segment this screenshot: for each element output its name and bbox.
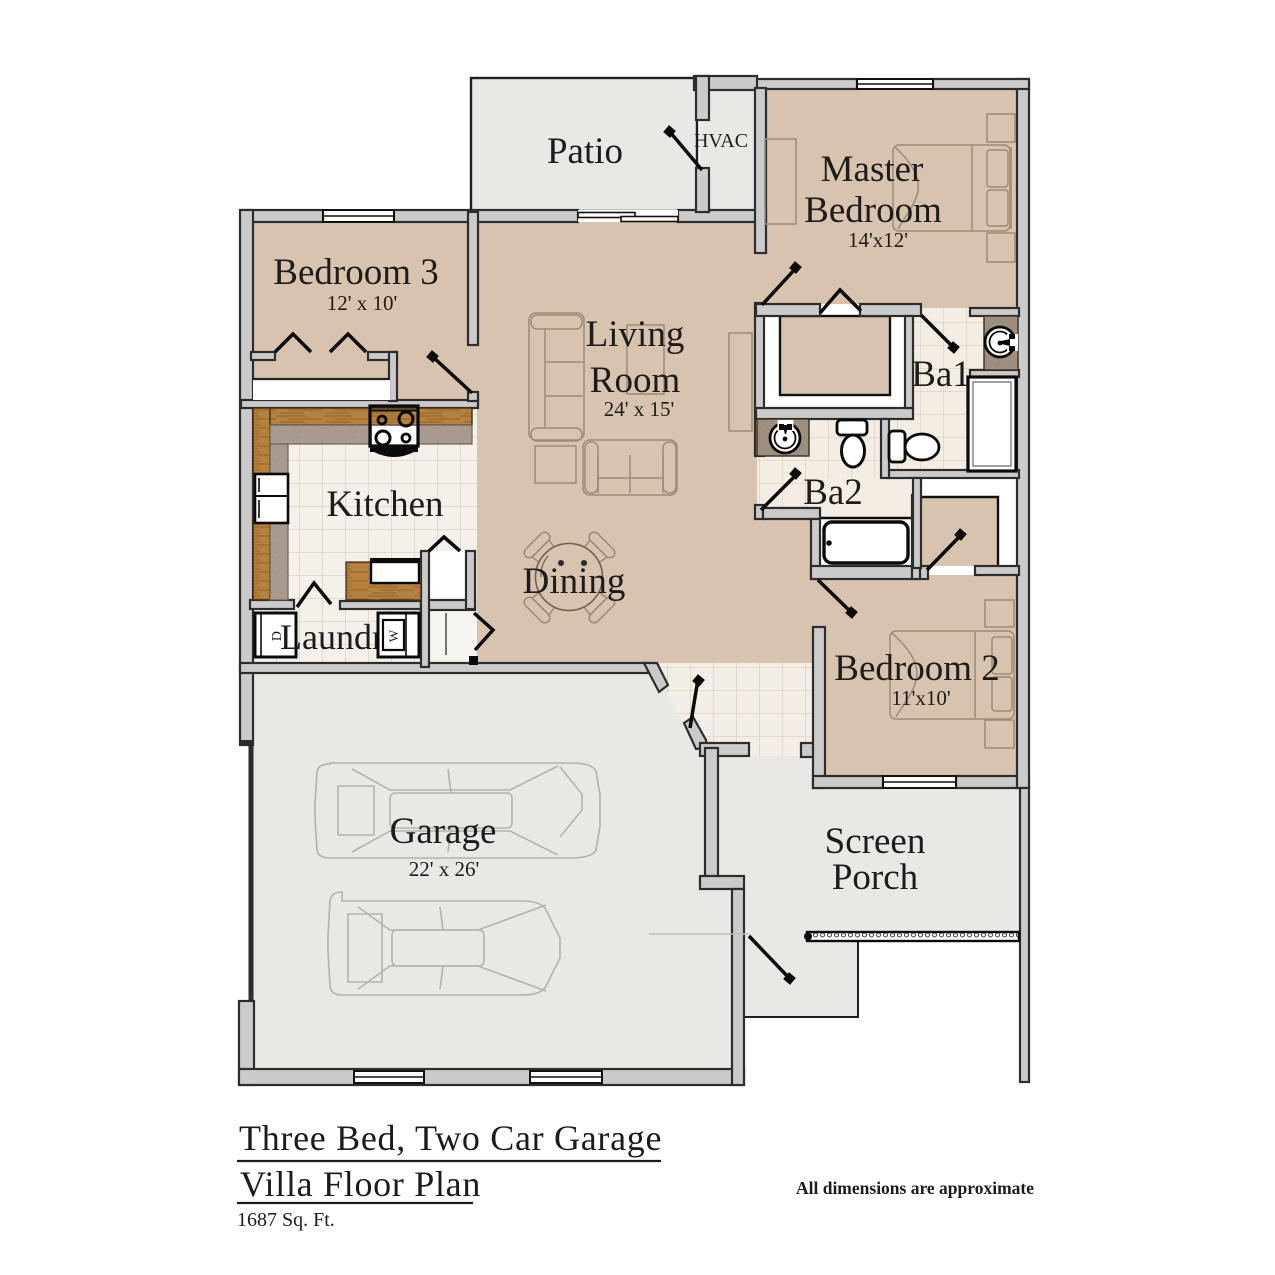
svg-text:HVAC: HVAC <box>694 130 748 152</box>
svg-text:Screen: Screen <box>825 821 926 862</box>
svg-text:Bedroom: Bedroom <box>804 190 942 231</box>
svg-text:Kitchen: Kitchen <box>326 484 443 525</box>
svg-text:22' x 26': 22' x 26' <box>409 857 480 881</box>
svg-text:Living: Living <box>586 314 685 355</box>
svg-text:Patio: Patio <box>547 131 623 172</box>
svg-text:12' x 10': 12' x 10' <box>327 291 398 315</box>
svg-text:Villa Floor Plan: Villa Floor Plan <box>240 1164 481 1204</box>
svg-text:Three Bed, Two Car Garage: Three Bed, Two Car Garage <box>239 1118 662 1158</box>
svg-text:All dimensions are approximate: All dimensions are approximate <box>796 1178 1034 1198</box>
svg-text:24' x 15': 24' x 15' <box>604 397 675 421</box>
svg-text:11'x10': 11'x10' <box>891 686 950 710</box>
svg-text:Ba2: Ba2 <box>803 472 863 513</box>
svg-text:Room: Room <box>590 360 681 401</box>
svg-text:Master: Master <box>821 149 924 190</box>
svg-text:14'x12': 14'x12' <box>848 228 908 252</box>
svg-text:1687 Sq. Ft.: 1687 Sq. Ft. <box>237 1209 335 1231</box>
svg-text:Ba1: Ba1 <box>911 354 971 395</box>
svg-text:W: W <box>386 629 401 642</box>
svg-text:Dining: Dining <box>523 561 626 602</box>
svg-text:Garage: Garage <box>390 811 497 852</box>
svg-text:Bedroom 2: Bedroom 2 <box>834 648 999 689</box>
svg-text:Porch: Porch <box>832 857 919 898</box>
svg-text:Bedroom 3: Bedroom 3 <box>273 252 438 293</box>
